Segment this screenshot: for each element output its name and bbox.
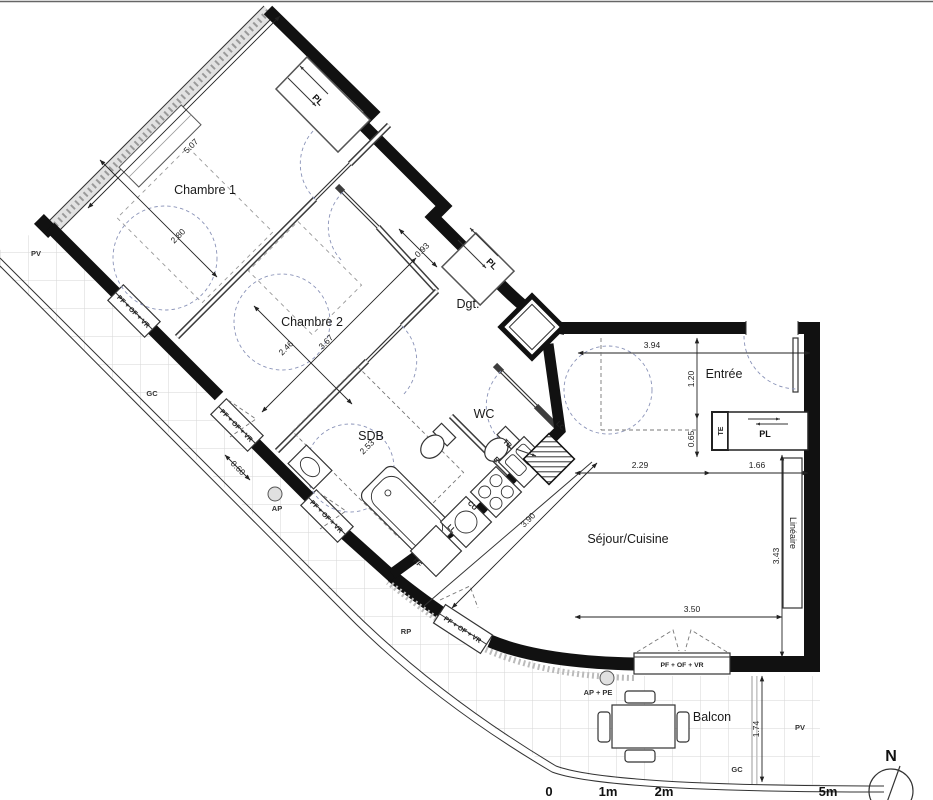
dim-sejour-height: 3.43 (771, 547, 781, 564)
lineaire-label: Linéaire (788, 517, 798, 549)
closet-te-label: TE (718, 426, 725, 435)
scale-5m: 5m (819, 784, 838, 799)
room-label-entree: Entrée (706, 367, 743, 381)
label-pv-balcony: PV (795, 723, 805, 732)
label-ap-pe: AP + PE (584, 688, 613, 697)
label-rp: RP (401, 627, 411, 636)
ap-post (268, 487, 282, 501)
room-label-wc: WC (474, 407, 495, 421)
room-label-dgt: Dgt. (457, 297, 480, 311)
scale-2m: 2m (655, 784, 674, 799)
room-label-chambre2: Chambre 2 (281, 315, 343, 329)
scale-0: 0 (545, 784, 552, 799)
north-label: N (885, 748, 897, 765)
scale-1m: 1m (599, 784, 618, 799)
dim-entree-width: 3.94 (644, 340, 661, 350)
ap-pe-post (600, 671, 614, 685)
dim-sejour-width: 3.50 (684, 604, 701, 614)
dim-balcon-depth: 1.74 (751, 720, 761, 737)
room-label-chambre1: Chambre 1 (174, 183, 236, 197)
label-ap: AP (272, 504, 282, 513)
label-pv-terrace: PV (31, 249, 41, 258)
label-gc-terrace: GC (146, 389, 158, 398)
floor-plan-svg: PF + OF + VR PF + OF + VR PF + OF + VR P… (0, 0, 933, 800)
dim-sejour-right: 1.66 (749, 460, 766, 470)
dim-entree-depth: 1.20 (686, 370, 696, 387)
window-balcony-label: PF + OF + VR (660, 662, 703, 669)
room-label-sejour: Séjour/Cuisine (587, 532, 668, 546)
closet-pl-entree-label: PL (759, 429, 771, 439)
dim-sejour-left: 2.29 (632, 460, 649, 470)
floor-plan-page: PF + OF + VR PF + OF + VR PF + OF + VR P… (0, 0, 933, 800)
label-gc-balcony: GC (731, 765, 743, 774)
room-label-balcon: Balcon (693, 710, 731, 724)
dim-entree-closet: 0.65 (686, 430, 696, 447)
